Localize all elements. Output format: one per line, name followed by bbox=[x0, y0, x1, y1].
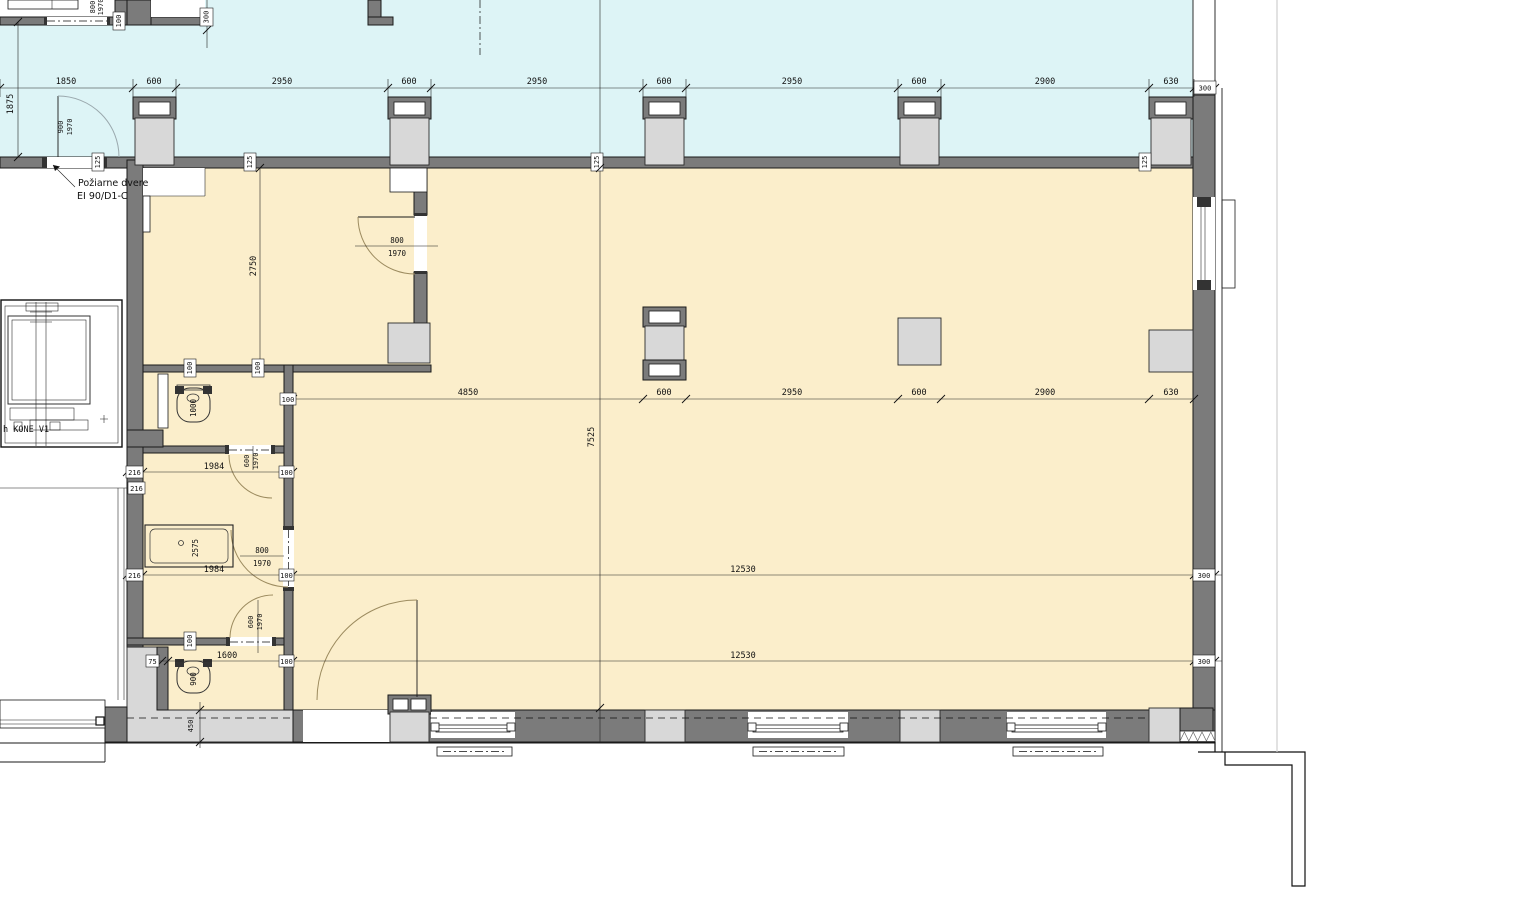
dim-box: 100 bbox=[282, 396, 295, 404]
corner-column bbox=[1149, 708, 1180, 742]
dim-box: 100 bbox=[280, 658, 293, 666]
topleft-door-width: 800 bbox=[89, 1, 97, 14]
dim-label: 1984 bbox=[204, 462, 224, 472]
topleft-door-height: 1970 bbox=[97, 0, 105, 15]
dim-box: 100 bbox=[186, 362, 194, 375]
dim-label: 12530 bbox=[730, 651, 756, 661]
door-width: 800 bbox=[255, 546, 269, 555]
column-framed bbox=[643, 307, 686, 380]
pilaster bbox=[898, 97, 941, 165]
dim-box: 100 bbox=[280, 572, 293, 580]
floorplan-drawing: h KONE V1 800 1970 100 300 900 1970 bbox=[0, 0, 1533, 901]
dim-box: 75 bbox=[148, 658, 156, 666]
dim-box: 125 bbox=[94, 156, 102, 169]
fire-door-width: 900 bbox=[57, 121, 65, 134]
pilaster bbox=[388, 97, 431, 165]
dim-label: 2750 bbox=[249, 256, 259, 276]
elevator-label: h KONE V1 bbox=[3, 425, 49, 435]
bottom-column bbox=[645, 710, 685, 742]
window-sill bbox=[1013, 747, 1103, 756]
dim-label: 7525 bbox=[587, 427, 597, 447]
dim-label: 630 bbox=[1163, 388, 1178, 398]
left-window-strip bbox=[0, 700, 127, 742]
dim-label: 600 bbox=[401, 77, 416, 87]
bottom-column bbox=[900, 710, 940, 742]
window-sill bbox=[437, 747, 512, 756]
dim-label: 450 bbox=[187, 720, 195, 733]
dim-box: 100 bbox=[186, 635, 194, 648]
column-plain bbox=[898, 318, 941, 365]
dim-label: 600 bbox=[146, 77, 161, 87]
dim-box: 100 bbox=[280, 469, 293, 477]
dim-label: 2900 bbox=[1035, 77, 1055, 87]
fixture-label: 1000 bbox=[189, 398, 198, 417]
dim-label: 600 bbox=[656, 77, 671, 87]
shaft-wall-chunk bbox=[127, 430, 163, 447]
dim-label: 1984 bbox=[204, 565, 224, 575]
dim-box: 300 bbox=[203, 11, 211, 24]
dim-label: 2900 bbox=[1035, 388, 1055, 398]
door-width: 800 bbox=[390, 236, 404, 245]
pilaster bbox=[1149, 97, 1193, 165]
dim-label: 12530 bbox=[730, 565, 756, 575]
vestibule-wall-lower bbox=[414, 272, 427, 323]
fixture-label: 900 bbox=[189, 672, 198, 686]
dim-box: 125 bbox=[1141, 156, 1149, 169]
dim-box: 300 bbox=[1198, 572, 1211, 580]
hall-area bbox=[143, 168, 1193, 710]
right-wall-window bbox=[1193, 197, 1235, 290]
entrance-pilaster bbox=[388, 695, 431, 742]
column-wall bbox=[1149, 330, 1193, 372]
dim-box: 125 bbox=[593, 156, 601, 169]
dim-label: 600 bbox=[911, 388, 926, 398]
fire-door-height: 1970 bbox=[66, 119, 74, 136]
door-width: 600 bbox=[247, 616, 255, 629]
dim-box: 125 bbox=[246, 156, 254, 169]
bottom-window bbox=[431, 712, 515, 738]
floorplan-canvas: h KONE V1 800 1970 100 300 900 1970 bbox=[0, 0, 1533, 901]
note-line-2: EI 90/D1-C bbox=[77, 191, 128, 202]
right-wall bbox=[1193, 95, 1215, 742]
door-height: 1970 bbox=[256, 614, 264, 631]
elevator-shaft: h KONE V1 bbox=[1, 300, 122, 447]
dim-box: 216 bbox=[128, 572, 141, 580]
pilaster bbox=[643, 97, 686, 165]
fixture-label: 2575 bbox=[191, 539, 200, 557]
dim-label: 1875 bbox=[6, 94, 16, 114]
dim-label: 2950 bbox=[527, 77, 547, 87]
dim-box: 100 bbox=[115, 15, 123, 28]
dim-label: 1600 bbox=[217, 651, 237, 661]
dim-box: 300 bbox=[1198, 658, 1211, 666]
dim-label: 1850 bbox=[56, 77, 76, 87]
dim-label: 2950 bbox=[272, 77, 292, 87]
door-height: 1970 bbox=[252, 453, 260, 470]
pilaster bbox=[133, 97, 176, 165]
dim-label: 600 bbox=[656, 388, 671, 398]
vestibule-pier bbox=[388, 323, 430, 363]
insulation-hatch bbox=[1180, 731, 1215, 742]
dim-box: 300 bbox=[1199, 85, 1212, 93]
corner-block bbox=[1180, 708, 1213, 731]
door-width: 600 bbox=[243, 455, 251, 468]
dim-label: 2950 bbox=[782, 77, 802, 87]
note-line-1: Požiarne dvere bbox=[78, 178, 148, 189]
dim-box: 216 bbox=[130, 485, 143, 493]
window-sill bbox=[753, 747, 844, 756]
dim-label: 2950 bbox=[782, 388, 802, 398]
dim-box: 216 bbox=[128, 469, 141, 477]
door-height: 1970 bbox=[253, 559, 272, 568]
dim-label: 630 bbox=[1163, 77, 1178, 87]
dim-label: 4850 bbox=[458, 388, 478, 398]
bottom-window bbox=[1007, 712, 1106, 738]
left-corridor-lines bbox=[0, 488, 127, 700]
bottom-window bbox=[748, 712, 848, 738]
door-height: 1970 bbox=[388, 249, 407, 258]
dim-label: 600 bbox=[911, 77, 926, 87]
dim-box: 100 bbox=[254, 362, 262, 375]
